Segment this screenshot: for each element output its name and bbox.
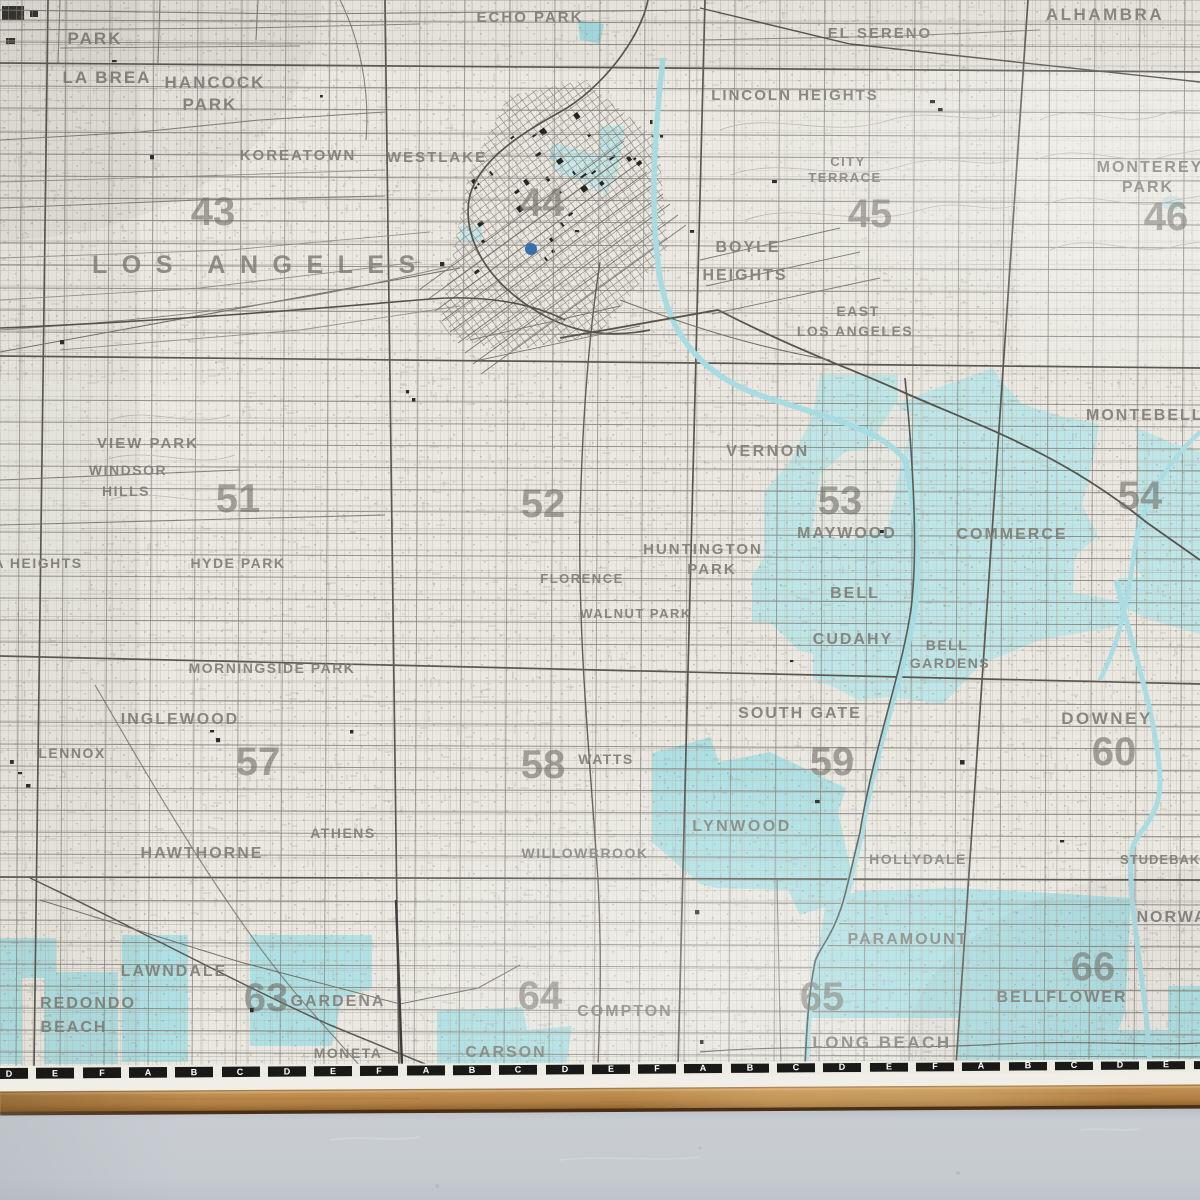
svg-text:C: C xyxy=(1071,1060,1078,1070)
svg-text:E: E xyxy=(1163,1059,1169,1069)
svg-text:A: A xyxy=(700,1063,707,1073)
svg-text:B: B xyxy=(191,1067,198,1077)
svg-text:C: C xyxy=(515,1064,522,1074)
svg-text:C: C xyxy=(793,1062,800,1072)
svg-text:D: D xyxy=(562,1064,569,1074)
svg-text:D: D xyxy=(284,1066,291,1076)
svg-text:D: D xyxy=(1117,1060,1124,1070)
svg-text:A: A xyxy=(978,1061,985,1071)
svg-text:E: E xyxy=(330,1066,336,1076)
svg-text:B: B xyxy=(747,1063,754,1073)
svg-text:E: E xyxy=(886,1061,892,1071)
svg-text:F: F xyxy=(932,1061,938,1071)
svg-text:C: C xyxy=(237,1067,244,1077)
svg-text:D: D xyxy=(6,1069,13,1079)
svg-text:F: F xyxy=(376,1066,382,1076)
svg-text:F: F xyxy=(654,1063,660,1073)
svg-text:F: F xyxy=(99,1068,105,1078)
svg-text:E: E xyxy=(52,1068,58,1078)
svg-text:E: E xyxy=(608,1064,614,1074)
svg-text:D: D xyxy=(839,1062,846,1072)
svg-text:B: B xyxy=(1025,1060,1032,1070)
svg-text:A: A xyxy=(145,1068,152,1078)
svg-text:B: B xyxy=(469,1065,476,1075)
svg-text:A: A xyxy=(423,1065,430,1075)
